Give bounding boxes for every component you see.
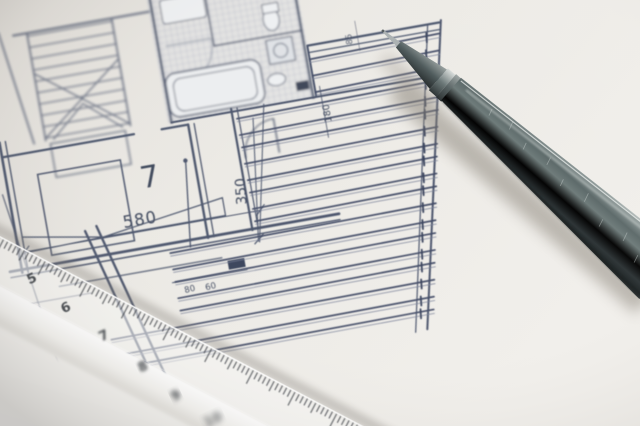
scene-canvas: 580 350 7 80 60 bbox=[0, 0, 640, 426]
vignette-overlay bbox=[0, 0, 640, 426]
photo-floor-plan-scene: 580 350 7 80 60 bbox=[0, 0, 640, 426]
